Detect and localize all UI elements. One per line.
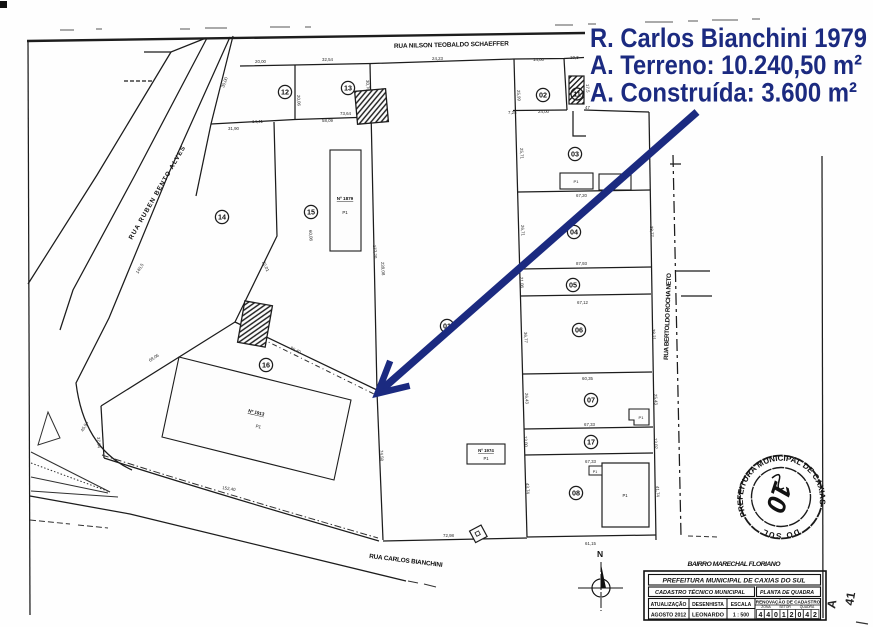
svg-text:ZONA: ZONA	[761, 605, 771, 609]
svg-text:38,21: 38,21	[651, 329, 657, 341]
svg-text:07: 07	[587, 396, 595, 405]
svg-text:60,35: 60,35	[582, 376, 594, 381]
svg-text:24,23: 24,23	[432, 56, 444, 61]
svg-text:04: 04	[570, 228, 578, 237]
svg-text:13,00: 13,00	[523, 436, 529, 448]
svg-text:20,06: 20,06	[296, 95, 302, 107]
svg-text:32,54: 32,54	[322, 57, 334, 62]
svg-text:05: 05	[569, 281, 577, 290]
svg-text:ESCALA: ESCALA	[731, 602, 752, 608]
svg-text:12: 12	[281, 88, 289, 97]
svg-text:25,99: 25,99	[516, 90, 522, 102]
svg-text:4: 4	[805, 612, 809, 619]
svg-text:58,09: 58,09	[322, 118, 334, 123]
svg-text:7,25: 7,25	[508, 110, 517, 115]
svg-text:17: 17	[587, 438, 595, 447]
svg-text:4: 4	[758, 612, 762, 619]
svg-text:25,43: 25,43	[653, 394, 659, 406]
svg-text:13,02: 13,02	[653, 438, 659, 450]
svg-text:ATUALIZAÇÃO: ATUALIZAÇÃO	[651, 601, 687, 608]
svg-text:Nº 1974: Nº 1974	[478, 448, 494, 453]
svg-text:87,93: 87,93	[576, 261, 588, 266]
svg-text:2: 2	[813, 612, 817, 619]
svg-text:0: 0	[774, 612, 778, 619]
svg-text:08: 08	[572, 489, 580, 498]
svg-text:CADASTRO TÉCNICO MUNICIPAL: CADASTRO TÉCNICO MUNICIPAL	[655, 588, 746, 596]
svg-text:PLANTA DE QUADRA: PLANTA DE QUADRA	[760, 590, 814, 596]
svg-text:73,64: 73,64	[340, 111, 352, 116]
svg-text:LEONARDO: LEONARDO	[692, 613, 725, 619]
svg-text:14,41: 14,41	[252, 119, 264, 124]
svg-text:43,74: 43,74	[525, 483, 531, 495]
svg-text:20,00: 20,00	[255, 59, 267, 64]
svg-text:P1: P1	[622, 493, 628, 498]
svg-text:30,76: 30,76	[365, 80, 371, 92]
svg-text:2: 2	[790, 612, 794, 619]
svg-text:P1: P1	[593, 470, 597, 474]
svg-text:13: 13	[344, 84, 352, 93]
svg-text:16: 16	[262, 361, 270, 370]
svg-text:P1: P1	[639, 415, 645, 420]
svg-text:A. Terreno: 10.240,50 m²: A. Terreno: 10.240,50 m²	[590, 50, 862, 80]
svg-text:BAIRRO MARECHAL FLORIANO: BAIRRO MARECHAL FLORIANO	[688, 561, 782, 568]
svg-text:26,43: 26,43	[524, 393, 530, 405]
svg-text:15: 15	[307, 208, 315, 217]
svg-text:P1: P1	[483, 456, 489, 461]
svg-text:Nº 1879: Nº 1879	[337, 196, 354, 201]
svg-text:74,58: 74,58	[379, 450, 384, 462]
svg-text:21,08: 21,08	[519, 277, 525, 289]
svg-text:SETOR: SETOR	[779, 605, 791, 609]
svg-text:02: 02	[539, 91, 547, 100]
svg-text:N: N	[597, 549, 603, 559]
svg-text:67,20: 67,20	[576, 193, 588, 198]
svg-text:14: 14	[218, 213, 226, 222]
svg-text:R. Carlos Bianchini 1979: R. Carlos Bianchini 1979	[590, 23, 867, 53]
svg-text:41,74: 41,74	[655, 486, 661, 498]
svg-text:239,08: 239,08	[380, 262, 386, 276]
svg-text:38,77: 38,77	[649, 226, 655, 238]
svg-text:31,90: 31,90	[228, 126, 240, 131]
svg-text:61,15: 61,15	[585, 541, 597, 546]
svg-text:14,00: 14,00	[533, 57, 545, 62]
svg-text:67,33: 67,33	[584, 422, 596, 427]
svg-text:41: 41	[842, 591, 858, 607]
svg-text:4: 4	[766, 612, 770, 619]
svg-text:60,08: 60,08	[308, 230, 314, 242]
svg-text:03: 03	[571, 150, 579, 159]
svg-text:0: 0	[797, 612, 801, 619]
svg-text:P1: P1	[342, 210, 348, 215]
svg-text:P1: P1	[574, 179, 580, 184]
svg-text:67,12: 67,12	[577, 300, 589, 305]
svg-text:177,20: 177,20	[372, 245, 378, 259]
svg-text:24,00: 24,00	[538, 109, 550, 114]
svg-text:DESENHISTA: DESENHISTA	[692, 602, 724, 608]
svg-text:QUADRA: QUADRA	[800, 605, 815, 609]
svg-text:PREFEITURA MUNICIPAL DE CAX: PREFEITURA MUNICIPAL DE CAXIAS DO SUL	[663, 578, 806, 585]
svg-text:72,98: 72,98	[443, 533, 455, 538]
svg-text:RENOVAÇÃO DE CADASTRO: RENOVAÇÃO DE CADASTRO	[756, 599, 821, 605]
svg-text:1: 1	[782, 612, 786, 619]
svg-text:AGOSTO 2012: AGOSTO 2012	[651, 613, 686, 619]
svg-text:1 : 500: 1 : 500	[733, 613, 749, 619]
svg-text:25,71: 25,71	[519, 148, 525, 160]
svg-text:10,3: 10,3	[570, 55, 579, 60]
svg-text:67,33: 67,33	[585, 459, 597, 464]
svg-text:11: 11	[573, 89, 581, 98]
svg-text:36,77: 36,77	[523, 332, 529, 344]
svg-text:37,04: 37,04	[96, 437, 102, 449]
svg-text:26,71: 26,71	[520, 225, 526, 237]
svg-text:06: 06	[575, 326, 583, 335]
svg-text:A. Construída: 3.600 m²: A. Construída: 3.600 m²	[590, 78, 857, 108]
